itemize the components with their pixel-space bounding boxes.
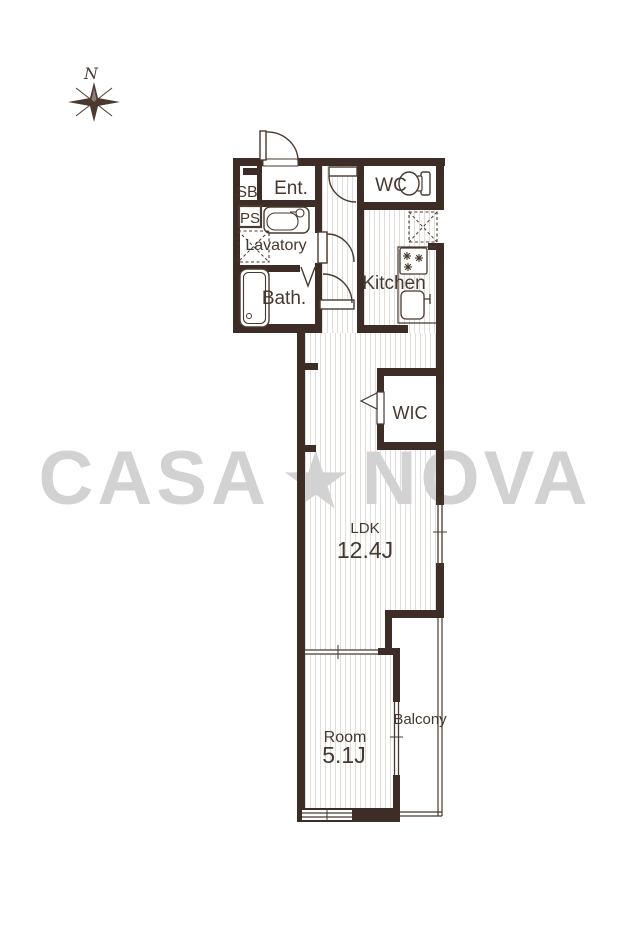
entrance-door [260,131,298,166]
label-lavatory: Lavatory [245,237,306,254]
lavatory-sink-icon [264,207,309,233]
label-bath: Bath. [262,288,306,309]
label-room-size: 5.1J [322,742,365,768]
wic-door-arrow-icon [361,393,377,409]
room-sliding-partition [305,645,378,659]
bath-folding-door [301,267,315,286]
lavatory-door [318,232,354,263]
ldk-door [320,274,354,309]
label-wic: WIC [393,403,428,423]
fridge-space-icon [409,212,437,242]
compass-icon: N [68,64,120,122]
label-ldk-size: 12.4J [337,537,393,563]
stove-icon [400,248,427,274]
label-entrance: Ent. [274,178,308,199]
label-ldk: LDK [350,520,379,537]
wic-door [361,392,384,424]
label-ps: PS [240,210,260,227]
label-wc: WC [375,175,407,196]
compass-north-label: N [83,64,99,83]
floorplan-drawing: N [0,0,630,950]
hall-door [329,167,357,202]
label-balcony: Balcony [393,711,447,728]
kitchen-sink-icon [401,291,430,319]
label-sb: SB [236,184,257,201]
ldk-window [433,497,447,567]
floorplan-canvas: CASA★NOVA N [0,0,630,950]
label-kitchen: Kitchen [362,273,425,294]
